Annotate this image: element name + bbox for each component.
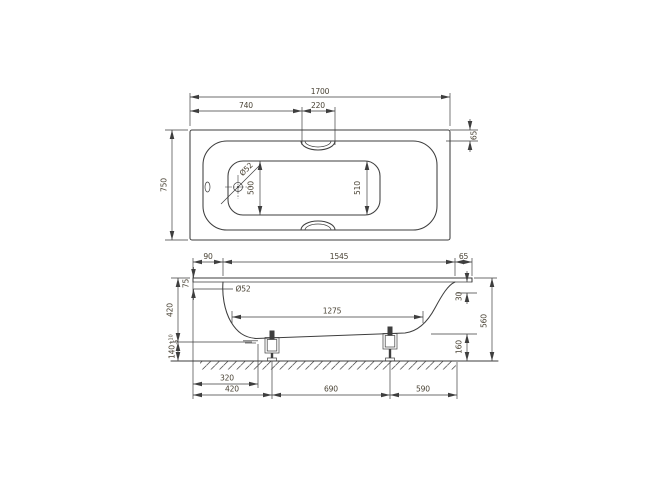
dim-overall-width: 750: [160, 178, 169, 192]
grip-recess-top: [301, 141, 335, 150]
dim-foot-height-value: 140: [168, 345, 177, 359]
dim-foot-height-tol-lower: -5: [174, 340, 180, 345]
dim-rim-roll-height: 30: [455, 292, 464, 302]
dim-rim-overhang-foot: 65: [459, 252, 469, 261]
plan-view: Ø52 1700 740 220 750 65 500 510: [160, 87, 479, 240]
floor-hatch: [200, 362, 456, 370]
dim-bottom-width-foot: 510: [353, 181, 362, 195]
dim-bottom-width-head: 500: [247, 181, 256, 195]
dim-length-to-grip: 740: [239, 101, 253, 110]
drawing-canvas: Ø52 1700 740 220 750 65 500 510: [0, 0, 667, 500]
dim-waste-from-end: 320: [220, 374, 234, 383]
dim-rim-to-underside: 420: [166, 303, 175, 317]
overflow-symbol-plan: [205, 182, 210, 192]
plan-outer-rim: [190, 130, 450, 240]
dim-rim-width: 65: [470, 131, 479, 141]
dim-underside-clearance: 160: [455, 340, 464, 354]
dim-overflow-diameter: Ø52: [236, 285, 251, 294]
dim-waste-diameter-plan: Ø52: [238, 160, 255, 177]
dim-foot-spacing: 690: [324, 385, 338, 394]
plan-inner-opening: [203, 141, 437, 230]
elevation-view: 90 1545 65 75 Ø52 420 140 +10 -5 1275 30: [166, 252, 499, 399]
dim-overflow-from-rim: 75: [182, 279, 191, 289]
dim-rim-overhang-head: 90: [203, 252, 213, 261]
adjustable-foot-rear: [383, 327, 397, 362]
dim-overall-length: 1700: [311, 87, 330, 96]
bathtub-technical-drawing: Ø52 1700 740 220 750 65 500 510: [0, 0, 667, 500]
dim-interior-length: 1545: [330, 252, 349, 261]
grip-recess-bottom: [301, 221, 335, 230]
adjustable-foot-front: [265, 331, 279, 362]
dim-overall-height: 560: [480, 314, 489, 328]
dim-rear-foot-from-end: 590: [416, 385, 430, 394]
dim-flat-bottom-length: 1275: [323, 307, 342, 316]
dim-front-foot-from-end: 420: [225, 385, 239, 394]
dim-grip-width: 220: [311, 101, 325, 110]
